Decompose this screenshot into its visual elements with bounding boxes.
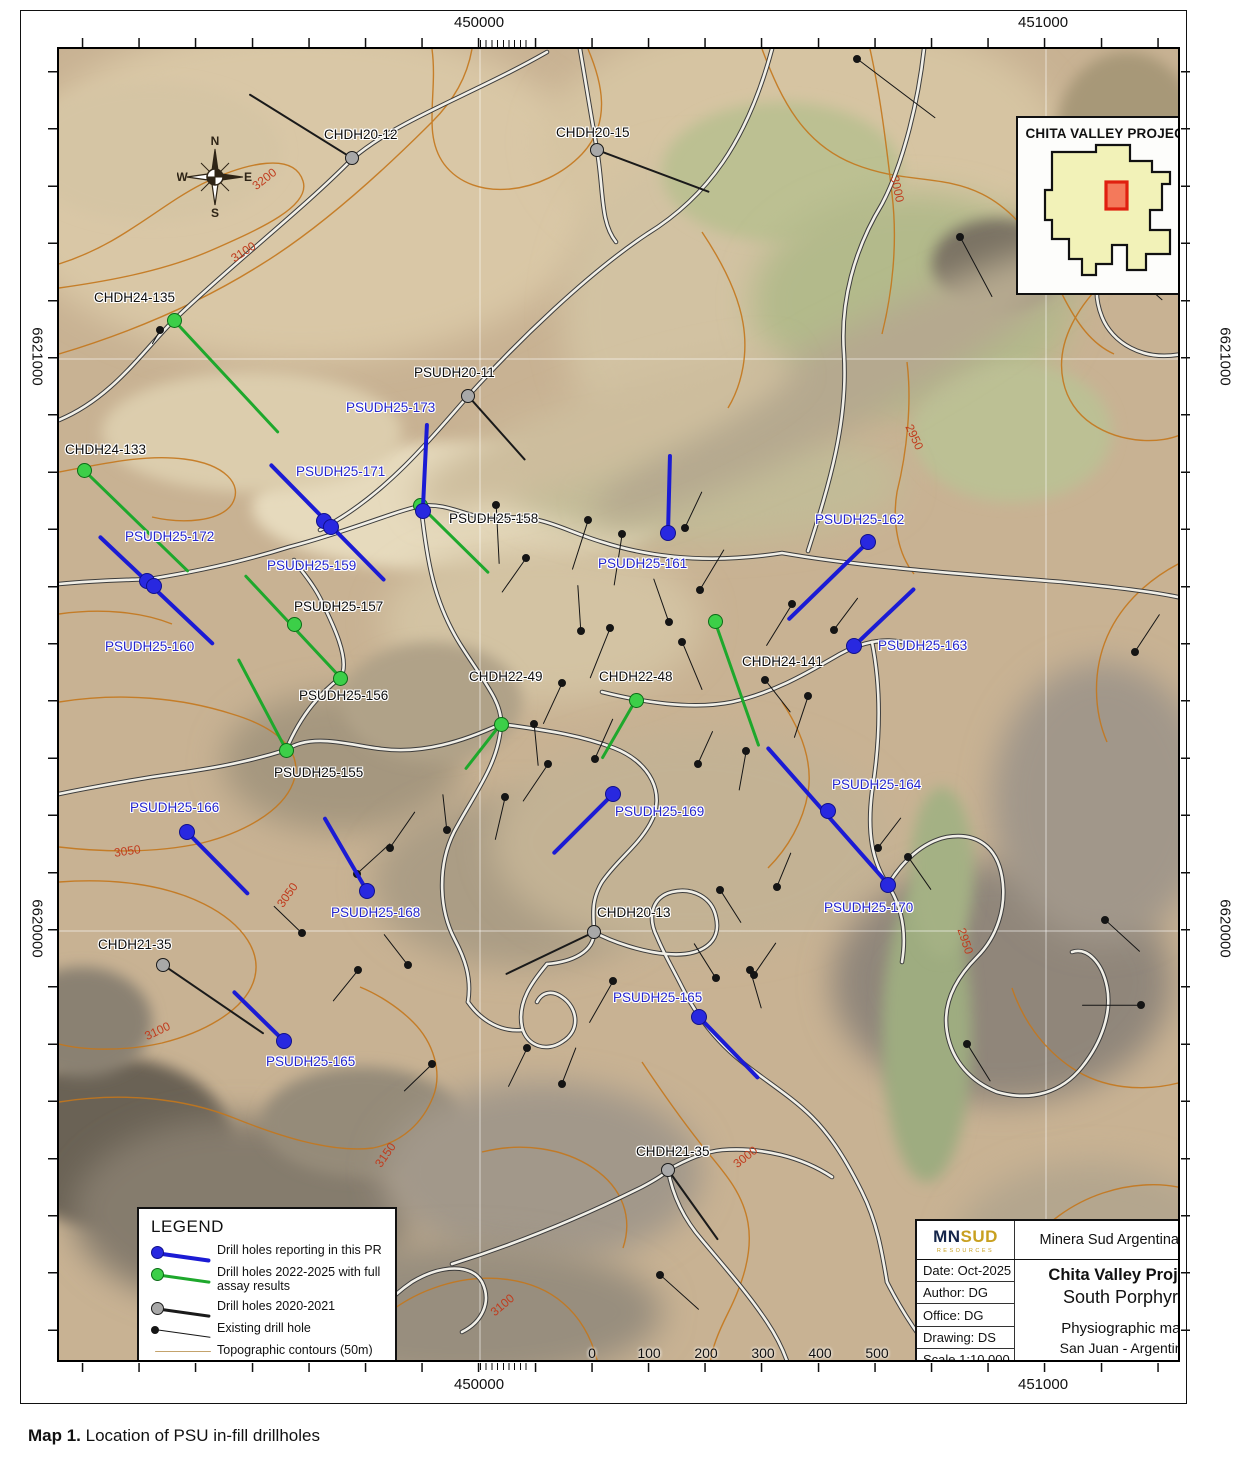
map-canvas: CHDH20-12CHDH20-15PSUDH20-11CHDH20-13CHD… bbox=[57, 47, 1180, 1362]
existing-drillhole-dot bbox=[830, 626, 838, 634]
drillhole-label: CHDH22-49 bbox=[469, 669, 543, 684]
drillhole-label: CHDH24-135 bbox=[94, 290, 175, 305]
meta-office: Office: DG bbox=[917, 1304, 1014, 1326]
company-name: Minera Sud Argentina S.A. bbox=[1015, 1232, 1180, 1248]
terrain-basemap bbox=[59, 49, 1180, 1362]
blue-drillhole-dot bbox=[179, 824, 195, 840]
drillhole-label: PSUDH25-168 bbox=[331, 905, 420, 920]
existing-drillhole-dot bbox=[761, 676, 769, 684]
existing-drillhole-dot bbox=[716, 886, 724, 894]
compass-east-label: E bbox=[244, 170, 252, 184]
compass-north-label: N bbox=[211, 135, 220, 148]
legend-label: Topographic contours (50m) bbox=[217, 1343, 373, 1357]
existing-drillhole-dot bbox=[404, 961, 412, 969]
drillhole-label: PSUDH25-156 bbox=[299, 688, 388, 703]
existing-drillhole-dot bbox=[678, 638, 686, 646]
existing-drillhole-dot bbox=[853, 55, 861, 63]
drillhole-label: CHDH20-15 bbox=[556, 125, 630, 140]
legend-item-blue: Drill holes reporting in this PR bbox=[151, 1243, 385, 1260]
drillhole-label: PSUDH25-164 bbox=[832, 777, 921, 792]
drillhole-label: CHDH24-141 bbox=[742, 654, 823, 669]
bottom-tick-marks bbox=[57, 1363, 1180, 1372]
scale-tick-label: 200 bbox=[694, 1345, 717, 1361]
blue-drillhole-dot bbox=[276, 1033, 292, 1049]
compass-west-label: W bbox=[177, 170, 188, 184]
existing-drillhole-dot bbox=[618, 530, 626, 538]
drillhole-label: CHDH20-12 bbox=[324, 127, 398, 142]
drillhole-label: PSUDH25-169 bbox=[615, 804, 704, 819]
compass-south-label: S bbox=[211, 206, 219, 219]
legend-label: Drill holes 2020-2021 bbox=[217, 1299, 335, 1313]
drillhole-label: CHDH20-13 bbox=[597, 905, 671, 920]
logo-sud: SUD bbox=[961, 1227, 998, 1246]
existing-drillhole-dot bbox=[558, 679, 566, 687]
map-type: Physiographic map bbox=[1015, 1320, 1180, 1337]
existing-drillhole-dot bbox=[874, 844, 882, 852]
green-drillhole-dot bbox=[167, 313, 182, 328]
existing-drillhole-dot bbox=[742, 747, 750, 755]
legend-item-existing: Existing drill hole bbox=[151, 1321, 385, 1338]
grid-label-bottom-west: 450000 bbox=[454, 1376, 504, 1393]
legend-label: Existing drill hole bbox=[217, 1321, 311, 1335]
existing-drillhole-dot bbox=[522, 554, 530, 562]
legend-item-green: Drill holes 2022-2025 with full assay re… bbox=[151, 1265, 385, 1294]
existing-drillhole-dot bbox=[609, 977, 617, 985]
blue-drillhole-dot bbox=[820, 803, 836, 819]
title-block-header: MNSUD RESOURCES Minera Sud Argentina S.A… bbox=[917, 1221, 1180, 1260]
drillhole-label: PSUDH25-160 bbox=[105, 639, 194, 654]
drillhole-label: PSUDH20-11 bbox=[414, 365, 495, 380]
green-drillhole-dot bbox=[708, 614, 723, 629]
scale-tick-label: 0 bbox=[588, 1345, 596, 1361]
existing-drillhole-dot bbox=[501, 793, 509, 801]
blue-drillhole-icon bbox=[151, 1244, 217, 1260]
existing-drillhole-dot bbox=[544, 760, 552, 768]
blue-drillhole-dot bbox=[359, 883, 375, 899]
caption-text: Location of PSU in-fill drillholes bbox=[81, 1426, 320, 1445]
grid-label-right-north: 6621000 bbox=[1217, 327, 1234, 385]
drillhole-label: CHDH21-35 bbox=[636, 1144, 710, 1159]
legend-item-gray: Drill holes 2020-2021 bbox=[151, 1299, 385, 1316]
drillhole-label: CHDH21-35 bbox=[98, 937, 172, 952]
meta-date: Date: Oct-2025 bbox=[917, 1260, 1014, 1282]
green-drillhole-dot bbox=[77, 463, 92, 478]
drillhole-label: PSUDH25-157 bbox=[294, 599, 383, 614]
legend: LEGEND Drill holes reporting in this PR … bbox=[137, 1207, 397, 1362]
drillhole-label: PSUDH25-170 bbox=[824, 900, 913, 915]
existing-drillhole-dot bbox=[443, 826, 451, 834]
green-drillhole-dot bbox=[279, 743, 294, 758]
existing-drillhole-dot bbox=[696, 586, 704, 594]
gray-drillhole-dot bbox=[461, 389, 475, 403]
drillhole-label: PSUDH25-163 bbox=[878, 638, 967, 653]
meta-author: Author: DG bbox=[917, 1282, 1014, 1304]
existing-drillhole-dot bbox=[354, 966, 362, 974]
drillhole-label: PSUDH25-155 bbox=[274, 765, 363, 780]
legend-label: Drill holes reporting in this PR bbox=[217, 1243, 382, 1257]
blue-drillhole-dot bbox=[323, 519, 339, 535]
page: { "caption": {"bold": "Map 1.", "text": … bbox=[0, 0, 1240, 1471]
scale-tick-label: 100 bbox=[637, 1345, 660, 1361]
project-title: Chita Valley Project bbox=[1015, 1266, 1180, 1285]
logo-subtext: RESOURCES bbox=[937, 1248, 994, 1254]
legend-title: LEGEND bbox=[151, 1217, 385, 1237]
meta-scale: Scale 1:10.000 bbox=[917, 1349, 1014, 1362]
existing-drillhole-dot bbox=[156, 326, 164, 334]
company-logo: MNSUD RESOURCES bbox=[917, 1221, 1015, 1259]
existing-drillhole-dot bbox=[523, 1044, 531, 1052]
existing-drillhole-dot bbox=[298, 929, 306, 937]
gray-drillhole-dot bbox=[661, 1163, 675, 1177]
drillhole-label: PSUDH25-165 bbox=[613, 990, 702, 1005]
blue-drillhole-dot bbox=[660, 525, 676, 541]
gray-drillhole-dot bbox=[345, 151, 359, 165]
drillhole-label: PSUDH25-165 bbox=[266, 1054, 355, 1069]
bottom-minor-ticks bbox=[480, 1363, 528, 1370]
green-drillhole-dot bbox=[333, 671, 348, 686]
gray-drillhole-dot bbox=[156, 958, 170, 972]
drillhole-label: PSUDH25-161 bbox=[598, 556, 687, 571]
blue-drillhole-dot bbox=[415, 503, 431, 519]
map-location: San Juan - Argentine bbox=[1015, 1340, 1180, 1356]
scale-tick-label: 500 bbox=[865, 1345, 888, 1361]
drillhole-label: PSUDH25-158 bbox=[449, 511, 538, 526]
green-drillhole-dot bbox=[629, 693, 644, 708]
existing-drillhole-icon bbox=[151, 1322, 217, 1338]
scale-tick-label: 400 bbox=[808, 1345, 831, 1361]
existing-drillhole-dot bbox=[1131, 648, 1139, 656]
existing-drillhole-dot bbox=[428, 1060, 436, 1068]
blue-drillhole-dot bbox=[860, 534, 876, 550]
title-block: MNSUD RESOURCES Minera Sud Argentina S.A… bbox=[915, 1219, 1180, 1362]
existing-drillhole-dot bbox=[656, 1271, 664, 1279]
inset-project-outline bbox=[1024, 142, 1180, 292]
existing-drillhole-trace bbox=[1082, 1004, 1141, 1005]
project-subtitle: South Porphyry bbox=[1015, 1287, 1180, 1308]
existing-drillhole-dot bbox=[788, 600, 796, 608]
green-drillhole-icon bbox=[151, 1266, 217, 1282]
existing-drillhole-dot bbox=[963, 1040, 971, 1048]
figure-caption: Map 1. Location of PSU in-fill drillhole… bbox=[28, 1426, 320, 1446]
legend-label: Drill holes 2022-2025 with full assay re… bbox=[217, 1265, 385, 1294]
top-minor-ticks bbox=[480, 40, 528, 47]
existing-drillhole-dot bbox=[904, 853, 912, 861]
top-tick-marks bbox=[57, 38, 1180, 47]
drillhole-label: PSUDH25-171 bbox=[296, 464, 385, 479]
drillhole-label: CHDH22-48 bbox=[599, 669, 673, 684]
grid-label-left-south: 6620000 bbox=[29, 899, 46, 957]
green-drillhole-dot bbox=[494, 717, 509, 732]
legend-item-contour: Topographic contours (50m) bbox=[151, 1343, 385, 1360]
blue-drillhole-dot bbox=[846, 638, 862, 654]
existing-drillhole-dot bbox=[694, 760, 702, 768]
existing-drillhole-dot bbox=[1101, 916, 1109, 924]
scale-tick-label: 300 bbox=[751, 1345, 774, 1361]
compass-rose: N S W E bbox=[177, 135, 253, 219]
caption-number: Map 1. bbox=[28, 1426, 81, 1445]
green-drillhole-dot bbox=[287, 617, 302, 632]
existing-drillhole-dot bbox=[577, 627, 585, 635]
meta-drawing: Drawing: DS bbox=[917, 1327, 1014, 1349]
drillhole-label: PSUDH25-159 bbox=[267, 558, 356, 573]
drillhole-label: PSUDH25-162 bbox=[815, 512, 904, 527]
existing-drillhole-dot bbox=[1137, 1001, 1145, 1009]
drillhole-label: PSUDH25-172 bbox=[125, 529, 214, 544]
existing-drillhole-dot bbox=[492, 501, 500, 509]
title-block-meta: Date: Oct-2025 Author: DG Office: DG Dra… bbox=[917, 1260, 1015, 1362]
existing-drillhole-dot bbox=[681, 524, 689, 532]
gray-drillhole-dot bbox=[590, 143, 604, 157]
existing-drillhole-dot bbox=[773, 883, 781, 891]
grid-label-left-north: 6621000 bbox=[29, 327, 46, 385]
existing-drillhole-dot bbox=[956, 233, 964, 241]
title-block-titles: Chita Valley Project South Porphyry Phys… bbox=[1015, 1260, 1180, 1362]
grid-label-right-south: 6620000 bbox=[1217, 899, 1234, 957]
left-tick-marks bbox=[48, 47, 57, 1362]
existing-drillhole-dot bbox=[804, 692, 812, 700]
existing-drillhole-dot bbox=[558, 1080, 566, 1088]
blue-drillhole-dot bbox=[146, 578, 162, 594]
blue-drillhole-dot bbox=[880, 877, 896, 893]
drillhole-label: PSUDH25-173 bbox=[346, 400, 435, 415]
existing-drillhole-dot bbox=[591, 755, 599, 763]
grid-label-top-west: 450000 bbox=[454, 14, 504, 31]
blue-drillhole-dot bbox=[605, 786, 621, 802]
existing-drillhole-dot bbox=[712, 974, 720, 982]
drillhole-label: PSUDH25-166 bbox=[130, 800, 219, 815]
blue-drillhole-dot bbox=[691, 1009, 707, 1025]
existing-drillhole-dot bbox=[750, 971, 758, 979]
contour-line-icon bbox=[151, 1344, 217, 1360]
drillhole-label: CHDH24-133 bbox=[65, 442, 146, 457]
inset-locator-map: CHITA VALLEY PROJECT bbox=[1016, 116, 1180, 295]
gray-drillhole-dot bbox=[587, 925, 601, 939]
scale-bar-labels: 0 100 200 300 400 500 bbox=[592, 1345, 877, 1361]
gray-drillhole-icon bbox=[151, 1300, 217, 1316]
inset-title: CHITA VALLEY PROJECT bbox=[1018, 126, 1180, 141]
existing-drillhole-dot bbox=[530, 720, 538, 728]
existing-drillhole-dot bbox=[606, 624, 614, 632]
grid-label-top-east: 451000 bbox=[1018, 14, 1068, 31]
right-tick-marks bbox=[1181, 47, 1190, 1362]
inset-current-extent bbox=[1106, 182, 1127, 209]
scale-bar: 0 100 200 300 400 500 Meters bbox=[592, 1345, 877, 1362]
logo-mn: MN bbox=[933, 1227, 960, 1246]
existing-drillhole-dot bbox=[665, 618, 673, 626]
existing-drillhole-dot bbox=[584, 516, 592, 524]
grid-label-bottom-east: 451000 bbox=[1018, 1376, 1068, 1393]
